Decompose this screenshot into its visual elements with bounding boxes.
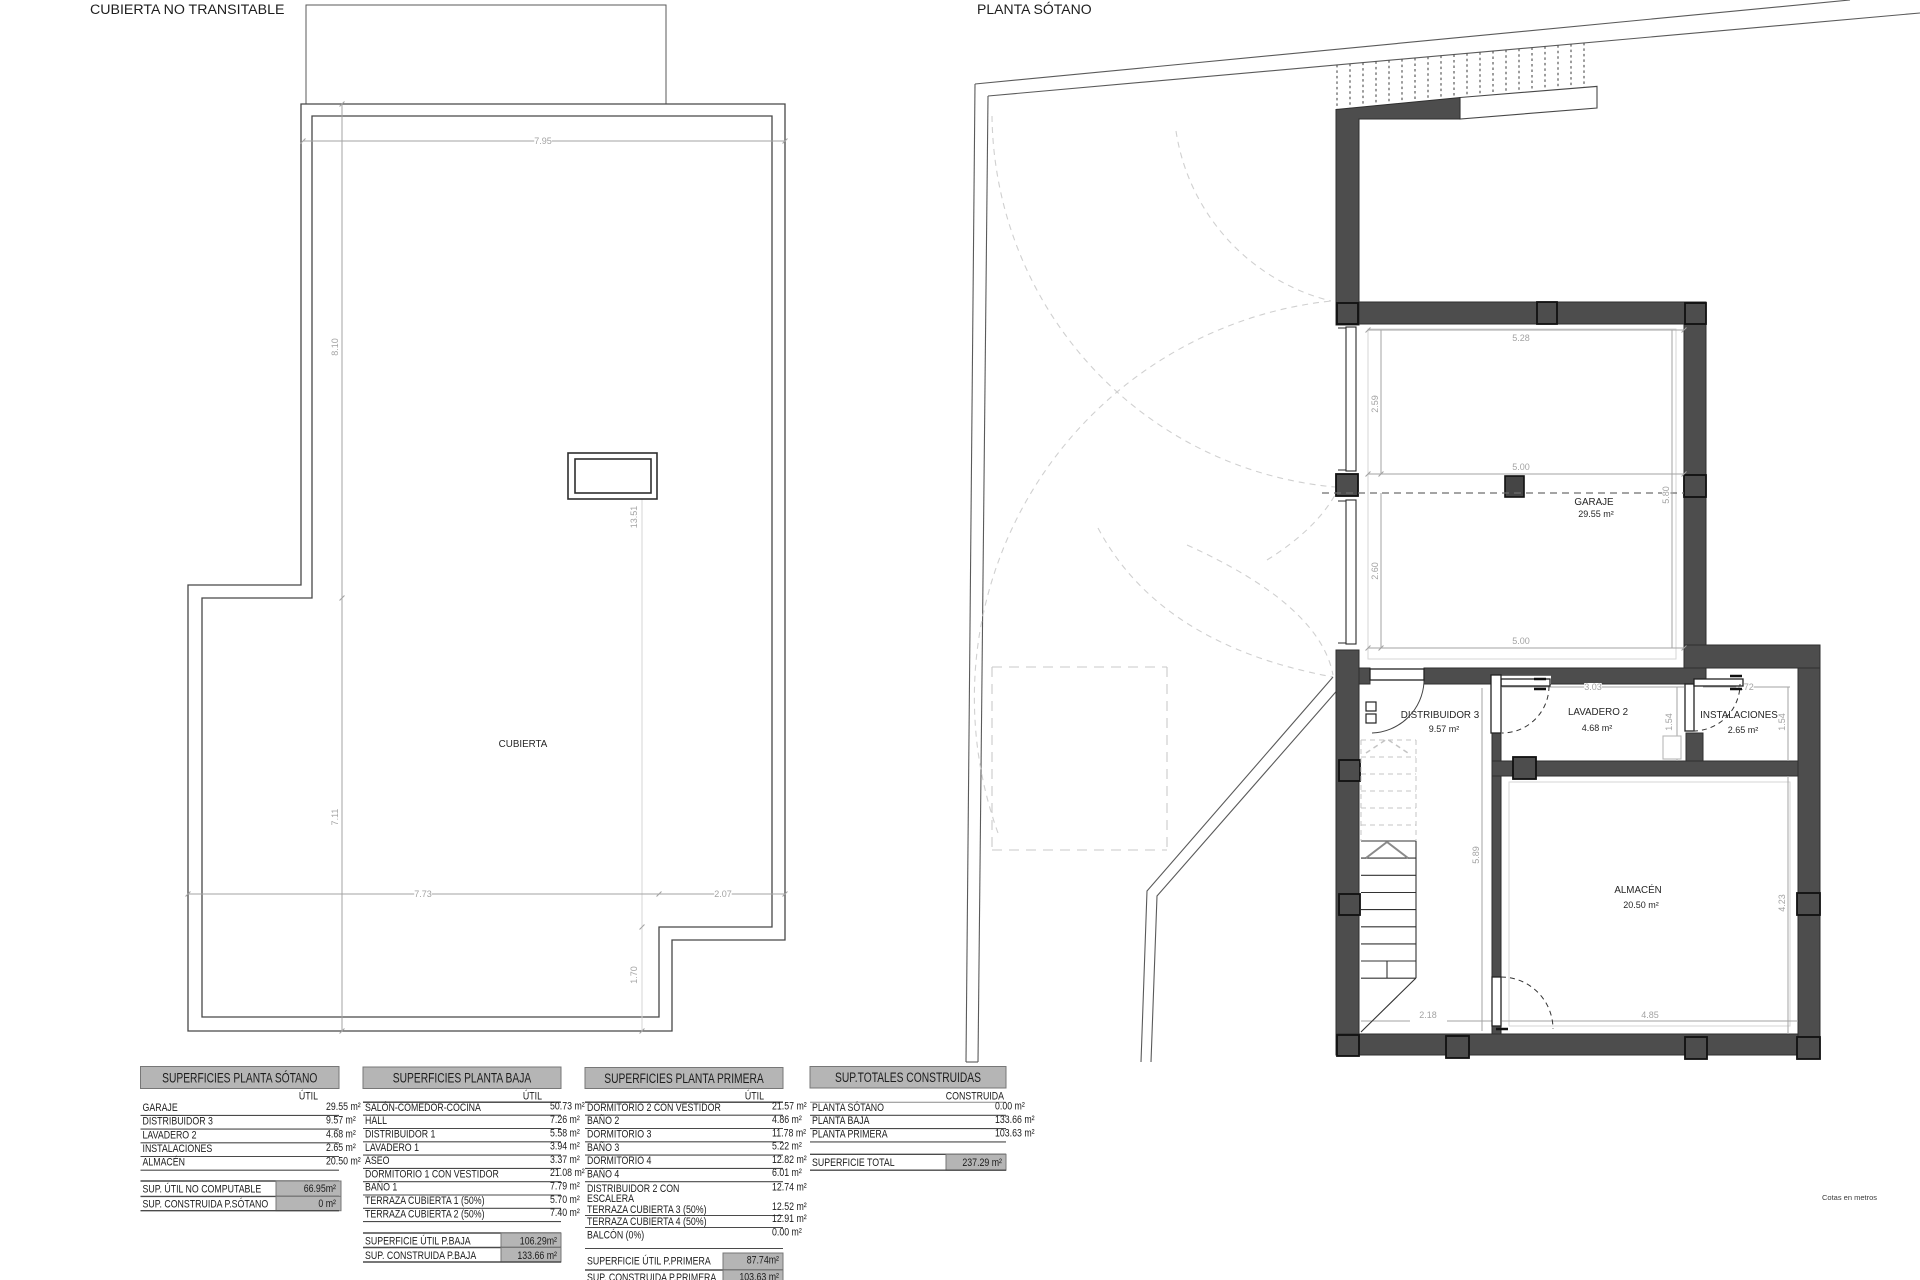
svg-text:5.00: 5.00	[1512, 636, 1530, 646]
svg-text:SUPERFICIES PLANTA SÓTANO: SUPERFICIES PLANTA SÓTANO	[162, 1070, 317, 1085]
svg-text:4.68 m²: 4.68 m²	[1582, 723, 1613, 733]
svg-text:DORMITORIO 4: DORMITORIO 4	[587, 1155, 651, 1167]
svg-text:4.85: 4.85	[1641, 1010, 1659, 1020]
svg-text:5.80: 5.80	[1661, 486, 1671, 504]
svg-text:DORMITORIO 3: DORMITORIO 3	[587, 1129, 651, 1141]
svg-text:106.29m²: 106.29m²	[520, 1235, 557, 1247]
svg-text:SUPERFICIES PLANTA PRIMERA: SUPERFICIES PLANTA PRIMERA	[604, 1071, 763, 1086]
svg-text:7.11: 7.11	[330, 809, 340, 826]
svg-text:8.10: 8.10	[330, 338, 340, 356]
svg-text:2.07: 2.07	[714, 889, 732, 899]
svg-text:3.37 m²: 3.37 m²	[550, 1154, 580, 1166]
svg-text:ALMACÉN: ALMACÉN	[143, 1156, 186, 1169]
svg-text:5.00: 5.00	[1512, 462, 1530, 472]
svg-text:7.95: 7.95	[534, 136, 552, 146]
svg-text:BAÑO 1: BAÑO 1	[365, 1181, 397, 1194]
svg-text:PLANTA PRIMERA: PLANTA PRIMERA	[812, 1129, 888, 1141]
svg-text:SUPERFICIE TOTAL: SUPERFICIE TOTAL	[812, 1157, 895, 1169]
svg-text:2.65 m²: 2.65 m²	[326, 1142, 356, 1154]
svg-text:HALL: HALL	[365, 1115, 387, 1127]
svg-text:103.63 m²: 103.63 m²	[739, 1272, 779, 1280]
svg-text:GARAJE: GARAJE	[143, 1102, 178, 1114]
svg-text:5.28: 5.28	[1512, 333, 1530, 343]
svg-text:12.52 m²: 12.52 m²	[772, 1201, 807, 1213]
svg-text:21.57 m²: 21.57 m²	[772, 1101, 807, 1113]
svg-text:ASEO: ASEO	[365, 1155, 390, 1167]
svg-text:LAVADERO 1: LAVADERO 1	[365, 1142, 419, 1154]
svg-text:0.00 m²: 0.00 m²	[995, 1101, 1025, 1113]
svg-text:5.22 m²: 5.22 m²	[772, 1141, 802, 1153]
svg-text:4.68 m²: 4.68 m²	[326, 1128, 356, 1140]
svg-text:SUP. ÚTIL NO COMPUTABLE: SUP. ÚTIL NO COMPUTABLE	[143, 1182, 262, 1195]
svg-text:2.18: 2.18	[1419, 1010, 1437, 1020]
svg-text:9.57 m²: 9.57 m²	[326, 1115, 356, 1127]
svg-text:29.55 m²: 29.55 m²	[326, 1101, 361, 1113]
svg-text:7.79 m²: 7.79 m²	[550, 1181, 580, 1193]
svg-text:2.60: 2.60	[1370, 562, 1380, 580]
svg-text:9.57 m²: 9.57 m²	[1429, 724, 1460, 734]
svg-text:5.58 m²: 5.58 m²	[550, 1127, 580, 1139]
svg-text:TERRAZA CUBIERTA 1 (50%): TERRAZA CUBIERTA 1 (50%)	[365, 1195, 485, 1207]
svg-text:SUPERFICIE ÚTIL P.PRIMERA: SUPERFICIE ÚTIL P.PRIMERA	[587, 1254, 711, 1267]
svg-text:13.51: 13.51	[629, 506, 639, 529]
svg-text:4.86 m²: 4.86 m²	[772, 1114, 802, 1126]
svg-text:21.08 m²: 21.08 m²	[550, 1167, 585, 1179]
svg-text:11.78 m²: 11.78 m²	[772, 1127, 806, 1139]
svg-text:20.50 m²: 20.50 m²	[1623, 900, 1659, 910]
svg-text:ÚTIL: ÚTIL	[523, 1090, 542, 1103]
svg-text:INSTALACIONES: INSTALACIONES	[143, 1143, 213, 1155]
svg-text:1.54: 1.54	[1664, 713, 1674, 731]
svg-text:PLANTA BAJA: PLANTA BAJA	[812, 1115, 870, 1127]
svg-text:LAVADERO 2: LAVADERO 2	[1568, 707, 1628, 718]
svg-text:TERRAZA CUBIERTA 4 (50%): TERRAZA CUBIERTA 4 (50%)	[587, 1216, 707, 1228]
svg-text:3.94 m²: 3.94 m²	[550, 1141, 580, 1153]
svg-text:12.74 m²: 12.74 m²	[772, 1182, 807, 1194]
svg-text:133.66 m²: 133.66 m²	[517, 1250, 557, 1262]
svg-text:TERRAZA CUBIERTA 2 (50%): TERRAZA CUBIERTA 2 (50%)	[365, 1208, 485, 1220]
svg-text:29.55 m²: 29.55 m²	[1578, 509, 1614, 519]
svg-text:ALMACÉN: ALMACÉN	[1614, 885, 1661, 896]
svg-text:CUBIERTA: CUBIERTA	[499, 739, 548, 750]
svg-text:66.95m²: 66.95m²	[304, 1183, 337, 1195]
svg-text:7.40 m²: 7.40 m²	[550, 1207, 580, 1219]
svg-text:12.82 m²: 12.82 m²	[772, 1154, 807, 1166]
svg-text:50.73 m²: 50.73 m²	[550, 1101, 585, 1113]
svg-text:SUP. CONSTRUIDA P.PRIMERA: SUP. CONSTRUIDA P.PRIMERA	[587, 1272, 717, 1280]
svg-text:5.70 m²: 5.70 m²	[550, 1194, 580, 1206]
svg-text:5.89: 5.89	[1471, 846, 1481, 864]
svg-text:BAÑO 3: BAÑO 3	[587, 1141, 619, 1154]
svg-text:3.03: 3.03	[1584, 682, 1602, 692]
svg-text:BAÑO 2: BAÑO 2	[587, 1114, 619, 1127]
svg-text:DISTRIBUIDOR 1: DISTRIBUIDOR 1	[365, 1129, 435, 1141]
svg-text:SALÓN-COMEDOR-COCINA: SALÓN-COMEDOR-COCINA	[365, 1101, 481, 1114]
svg-text:6.01 m²: 6.01 m²	[772, 1167, 802, 1179]
svg-text:CUBIERTA NO TRANSITABLE: CUBIERTA NO TRANSITABLE	[90, 2, 284, 18]
svg-text:7.26 m²: 7.26 m²	[550, 1114, 580, 1126]
svg-text:4.23: 4.23	[1777, 894, 1787, 912]
svg-text:2.59: 2.59	[1370, 395, 1380, 413]
svg-text:BAÑO 4: BAÑO 4	[587, 1167, 619, 1180]
svg-text:2.65 m²: 2.65 m²	[1728, 725, 1759, 735]
svg-text:PLANTA SÓTANO: PLANTA SÓTANO	[977, 1, 1092, 17]
svg-text:1.70: 1.70	[629, 966, 639, 984]
svg-text:DISTRIBUIDOR 3: DISTRIBUIDOR 3	[143, 1116, 213, 1128]
svg-text:DORMITORIO 1 CON VESTIDOR: DORMITORIO 1 CON VESTIDOR	[365, 1168, 499, 1180]
svg-text:LAVADERO 2: LAVADERO 2	[143, 1129, 197, 1141]
svg-text:87.74m²: 87.74m²	[747, 1255, 780, 1267]
svg-text:20.50 m²: 20.50 m²	[326, 1156, 361, 1168]
svg-text:1.54: 1.54	[1777, 713, 1787, 731]
svg-text:INSTALACIONES: INSTALACIONES	[1700, 710, 1778, 721]
svg-text:SUP.TOTALES CONSTRUIDAS: SUP.TOTALES CONSTRUIDAS	[835, 1070, 981, 1085]
svg-text:PLANTA SÓTANO: PLANTA SÓTANO	[812, 1101, 884, 1114]
svg-text:12.91 m²: 12.91 m²	[772, 1213, 807, 1225]
svg-text:DORMITORIO 2 CON VESTIDOR: DORMITORIO 2 CON VESTIDOR	[587, 1102, 721, 1114]
svg-text:SUP. CONSTRUIDA P.SÓTANO: SUP. CONSTRUIDA P.SÓTANO	[143, 1197, 269, 1210]
svg-text:SUP. CONSTRUIDA P.BAJA: SUP. CONSTRUIDA P.BAJA	[365, 1250, 477, 1262]
svg-text:SUPERFICIE ÚTIL P.BAJA: SUPERFICIE ÚTIL P.BAJA	[365, 1234, 471, 1247]
svg-text:ÚTIL: ÚTIL	[299, 1090, 318, 1103]
svg-text:237.29 m²: 237.29 m²	[962, 1157, 1002, 1169]
svg-text:7.73: 7.73	[414, 889, 432, 899]
svg-text:133.66 m²: 133.66 m²	[995, 1114, 1035, 1126]
svg-text:GARAJE: GARAJE	[1574, 497, 1614, 508]
svg-text:103.63 m²: 103.63 m²	[995, 1127, 1035, 1139]
svg-text:0 m²: 0 m²	[318, 1198, 336, 1210]
svg-text:ÚTIL: ÚTIL	[745, 1090, 764, 1103]
svg-text:BALCÓN (0%): BALCÓN (0%)	[587, 1229, 644, 1242]
svg-text:TERRAZA CUBIERTA 3 (50%): TERRAZA CUBIERTA 3 (50%)	[587, 1204, 707, 1216]
svg-text:Cotas en metros: Cotas en metros	[1822, 1193, 1877, 1202]
svg-text:0.00 m²: 0.00 m²	[772, 1227, 802, 1239]
svg-text:SUPERFICIES PLANTA BAJA: SUPERFICIES PLANTA BAJA	[393, 1071, 531, 1086]
